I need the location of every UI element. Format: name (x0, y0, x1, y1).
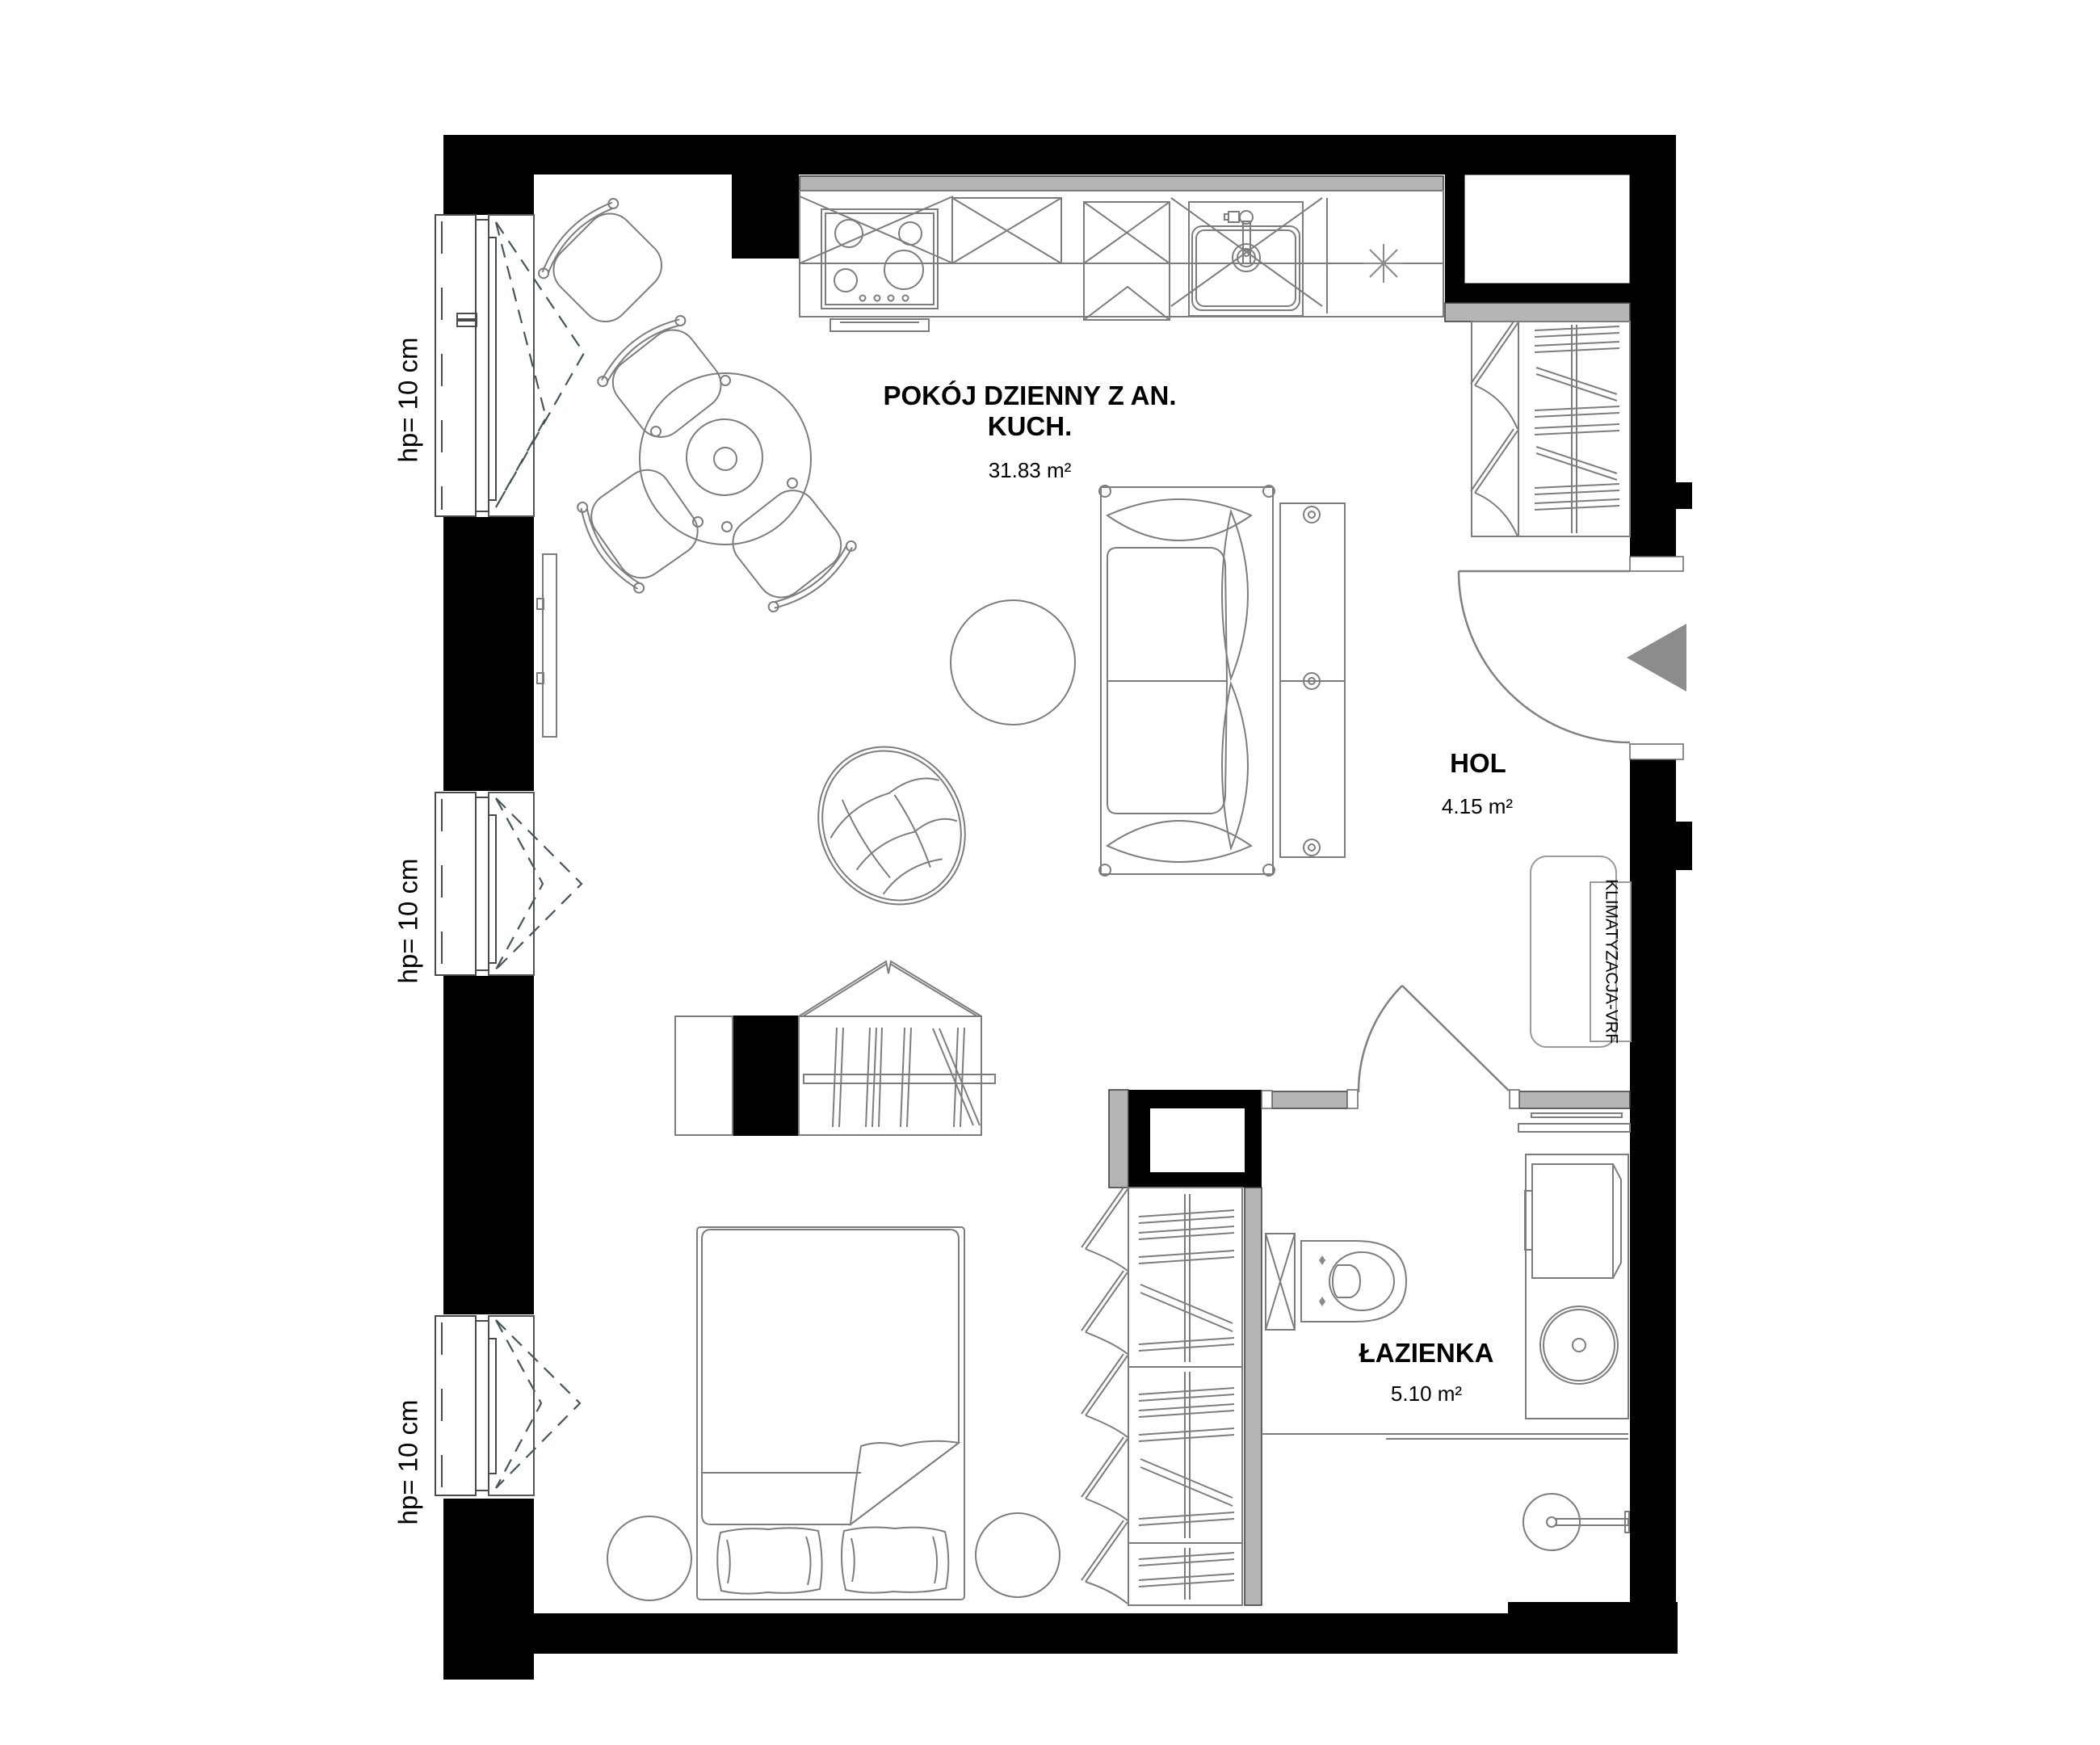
svg-text:KLIMATYZACJA-VRF: KLIMATYZACJA-VRF (1602, 879, 1620, 1044)
svg-text:hp= 10 cm: hp= 10 cm (393, 1399, 423, 1524)
svg-text:HOL: HOL (1450, 748, 1506, 778)
svg-text:31.83 m²: 31.83 m² (989, 458, 1072, 482)
svg-text:5.10 m²: 5.10 m² (1391, 1381, 1462, 1406)
svg-text:ŁAZIENKA: ŁAZIENKA (1359, 1338, 1494, 1368)
svg-text:4.15 m²: 4.15 m² (1442, 794, 1513, 818)
svg-text:KUCH.: KUCH. (988, 411, 1073, 441)
svg-text:hp= 10 cm: hp= 10 cm (393, 858, 423, 983)
svg-text:POKÓJ DZIENNY Z AN.: POKÓJ DZIENNY Z AN. (883, 381, 1176, 410)
svg-text:hp= 10 cm: hp= 10 cm (393, 337, 423, 462)
